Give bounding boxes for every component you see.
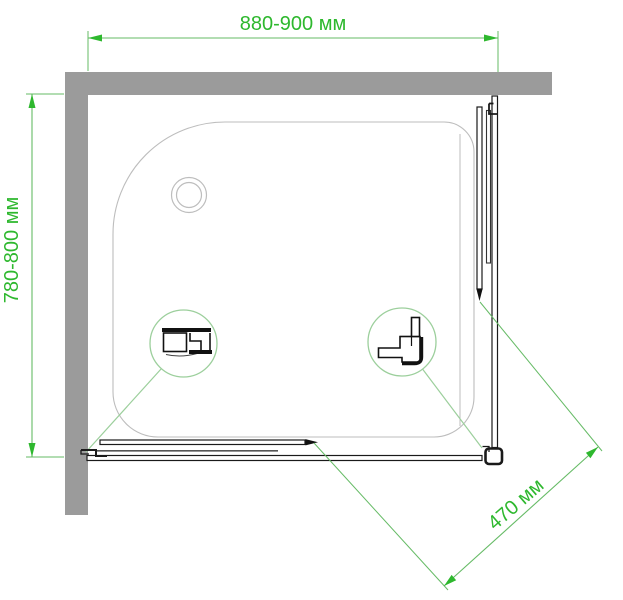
fixed-rail-right (492, 96, 498, 448)
wall-left (65, 72, 88, 515)
shower-enclosure-drawing: 880-900 мм 780-800 мм 470 мм (0, 0, 623, 600)
width-dimension-label: 880-900 мм (240, 13, 346, 35)
dim-entry-ext-upper (480, 302, 602, 451)
depth-dimension-label: 780-800 мм (1, 197, 23, 303)
wall-top (65, 72, 552, 95)
entry-dimension-label: 470 мм (484, 474, 549, 534)
dim-entry-ext-lower (314, 443, 448, 590)
frame-parts (81, 96, 502, 464)
detail-annotations (86, 308, 482, 452)
shower-tray (113, 122, 474, 437)
profile-section-left-icon (162, 328, 212, 356)
arrow-depth-down-icon (29, 443, 36, 457)
arrow-width-left-icon (88, 35, 102, 42)
door-panel-bottom (100, 440, 305, 445)
corner-bracket (486, 449, 503, 465)
bottom-rail (87, 456, 482, 461)
arrow-width-right-icon (484, 35, 498, 42)
door-slide-arrow-right-icon (476, 289, 482, 302)
tray-outline (113, 122, 474, 437)
door-panel-right-rear (487, 111, 491, 264)
door-panel-right (477, 107, 482, 289)
arrow-depth-up-icon (29, 94, 36, 108)
leader-line-right (423, 369, 483, 448)
profile-section-right-icon (379, 318, 422, 364)
technical-drawing-page: 880-900 мм 780-800 мм 470 мм (0, 0, 623, 600)
drain-inner-icon (177, 183, 202, 208)
dim-entry-line (444, 447, 598, 586)
door-slide-arrow-bottom-icon (306, 439, 319, 445)
